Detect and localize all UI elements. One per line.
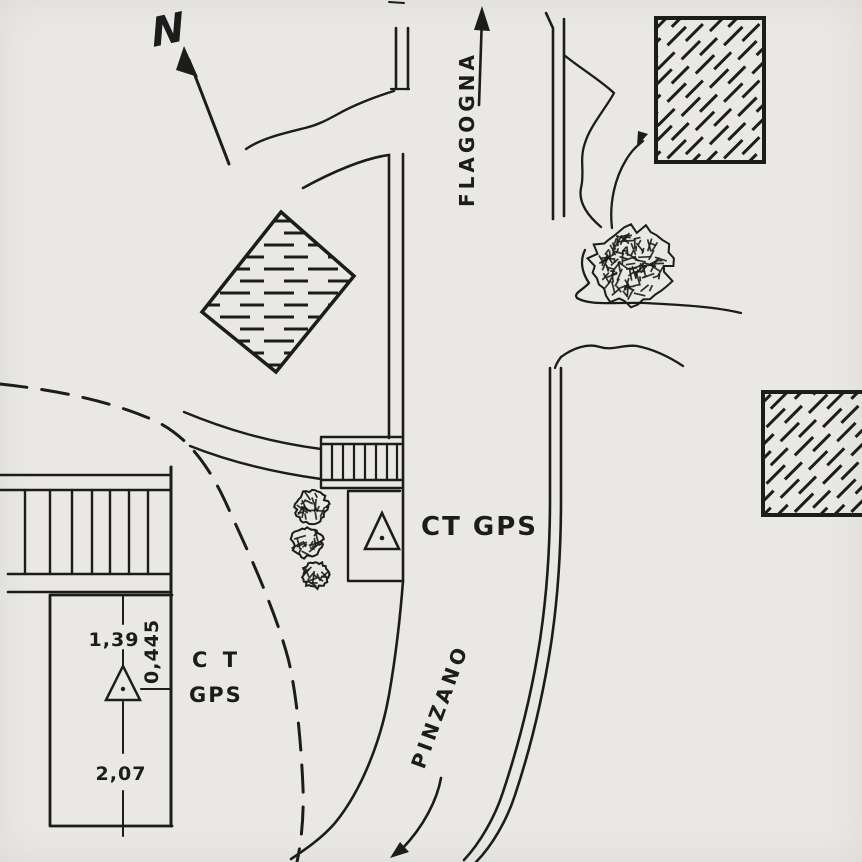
station-triangle-courtyard: [106, 666, 140, 700]
colonnade-columns: [25, 490, 148, 574]
road-edge: [464, 368, 550, 860]
flagogna-arrow-head: [474, 6, 490, 31]
courtyard-station-label-line1: C T: [192, 648, 241, 672]
tree-scribble-stroke: [634, 271, 645, 272]
tree-scribble-stroke: [640, 276, 641, 281]
verge-hook: [555, 357, 561, 368]
tree-scribble-stroke: [650, 285, 653, 291]
tree-scribble-stroke: [622, 250, 623, 264]
stairs-steps: [332, 444, 397, 480]
bush-scribble-stroke: [315, 493, 318, 498]
compass-label: N: [149, 4, 187, 57]
tree-scribble-stroke: [626, 268, 637, 269]
bush-scribble-stroke: [315, 512, 316, 520]
tree-scribble-stroke: [627, 246, 628, 256]
measurement-east: 0,445: [141, 619, 163, 684]
measurement-north: 1,39: [89, 629, 140, 651]
station-triangle-symbol: [365, 513, 399, 549]
tree-path: [611, 141, 643, 228]
tree-scribble-stroke: [620, 257, 629, 260]
tree-scribble-stroke: [612, 282, 615, 294]
bush-scribble-stroke: [305, 513, 306, 519]
tree-path-arrow-head: [637, 131, 648, 146]
road-edge-lower: [291, 581, 403, 859]
approach-edge-upper: [184, 412, 321, 449]
courtyard-station-label-line2: GPS: [189, 683, 243, 707]
building-diamond: [202, 212, 354, 372]
station-triangle-roadside: [365, 513, 399, 549]
tree-scribble-stroke: [615, 238, 617, 243]
flagogna-road-label: FLAGOGNA: [455, 51, 479, 207]
building-east: [763, 392, 862, 515]
site-sketch-map: N FLAGOGNA CT GPS: [0, 0, 862, 862]
tree-scribble-stroke: [642, 248, 644, 254]
approach-road: [184, 412, 321, 479]
road-edge: [476, 368, 561, 862]
bush-scribble-stroke: [305, 578, 317, 583]
station-triangle-symbol: [106, 666, 140, 700]
building-northeast: [656, 18, 764, 162]
stairs-entrance: [321, 437, 401, 581]
bush-scribble-stroke: [318, 511, 325, 512]
tree-scribble-stroke: [638, 257, 651, 258]
pinzano-arrow-shaft: [402, 778, 441, 849]
main-road: [246, 2, 409, 859]
survey-sketch-sheet: N FLAGOGNA CT GPS: [0, 0, 862, 862]
tree-scribble-stroke: [642, 276, 647, 278]
tree-scribble-stroke: [624, 237, 631, 238]
bush-scribble-stroke: [306, 510, 317, 511]
tree-scribble-stroke: [617, 236, 618, 246]
pinzano-arrow: [390, 778, 441, 858]
tree-scribble-stroke: [638, 240, 641, 245]
verge-line: [561, 346, 683, 366]
north-arrow: [176, 46, 229, 164]
tree-scribble-stroke: [631, 251, 634, 256]
tree-scribble-stroke: [649, 250, 654, 260]
road-flare-to-tree: [564, 55, 614, 227]
crossing-track: [246, 91, 394, 149]
station-point-dot: [380, 536, 385, 541]
road-edge: [546, 13, 553, 219]
tree-scribble-stroke: [634, 293, 645, 296]
tree-scribble-stroke: [633, 285, 639, 287]
tree-scribble-stroke: [612, 289, 620, 296]
road-end-tick-top: [389, 2, 404, 3]
tree-scribble-stroke: [626, 263, 636, 264]
station-point-dot: [121, 687, 125, 691]
tree-scribble-stroke: [610, 251, 611, 260]
bush-scribble-stroke: [304, 500, 312, 504]
bush-scribble-stroke: [294, 536, 306, 540]
measurement-south: 2,07: [96, 763, 147, 785]
tree-scribble-stroke: [628, 289, 634, 300]
pinzano-road-label: PINZANO: [406, 641, 473, 772]
roadside-station-label: CT GPS: [421, 512, 538, 542]
tree-scribble-stroke: [641, 285, 649, 292]
